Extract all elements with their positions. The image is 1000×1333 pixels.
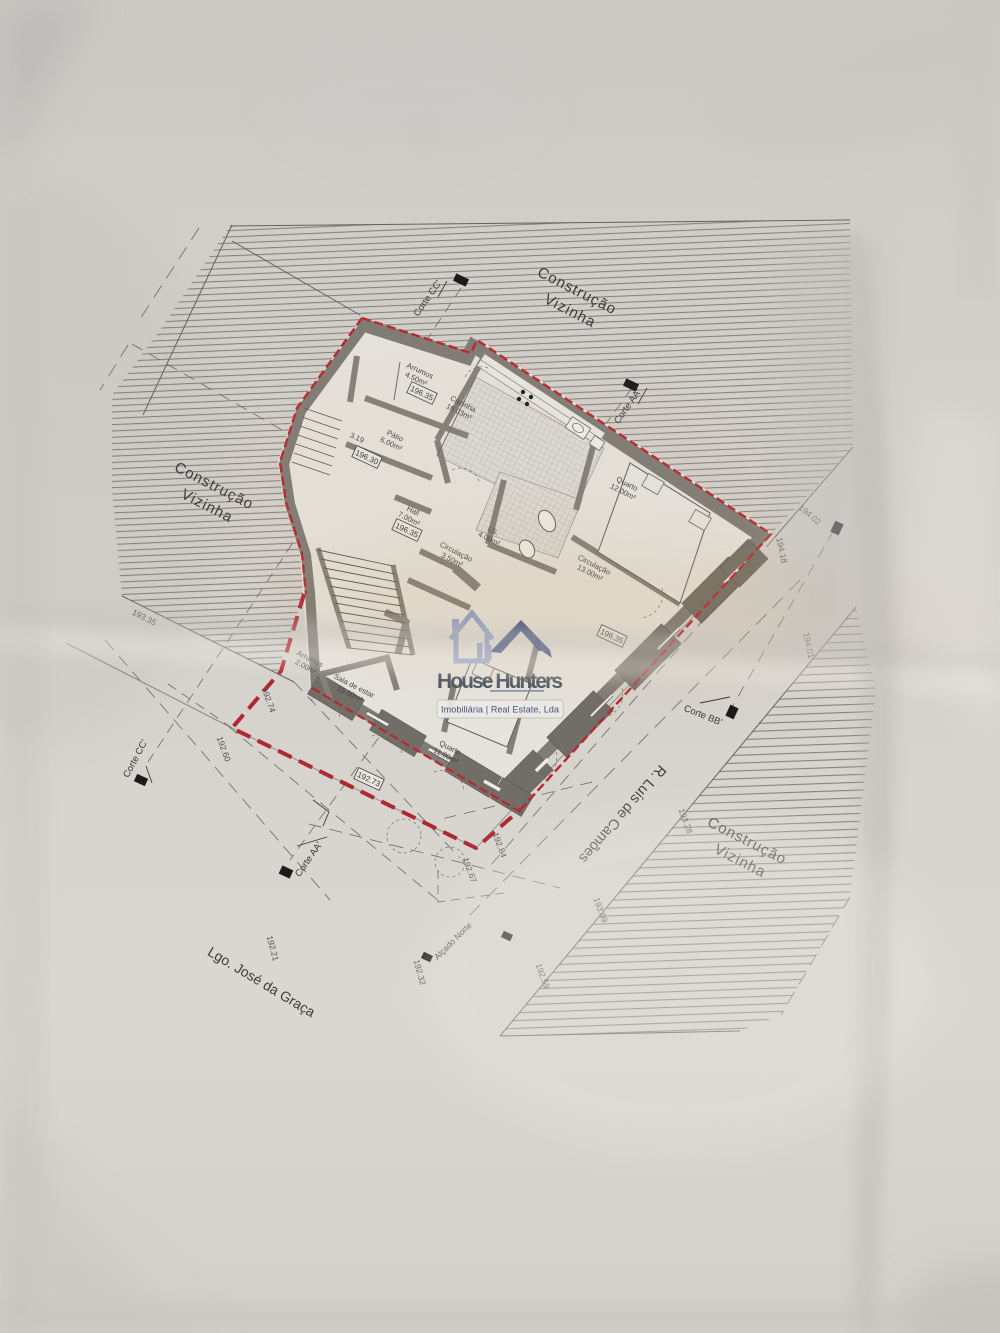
svg-text:Imobiliária | Real Estate, Lda: Imobiliária | Real Estate, Lda (441, 705, 559, 715)
